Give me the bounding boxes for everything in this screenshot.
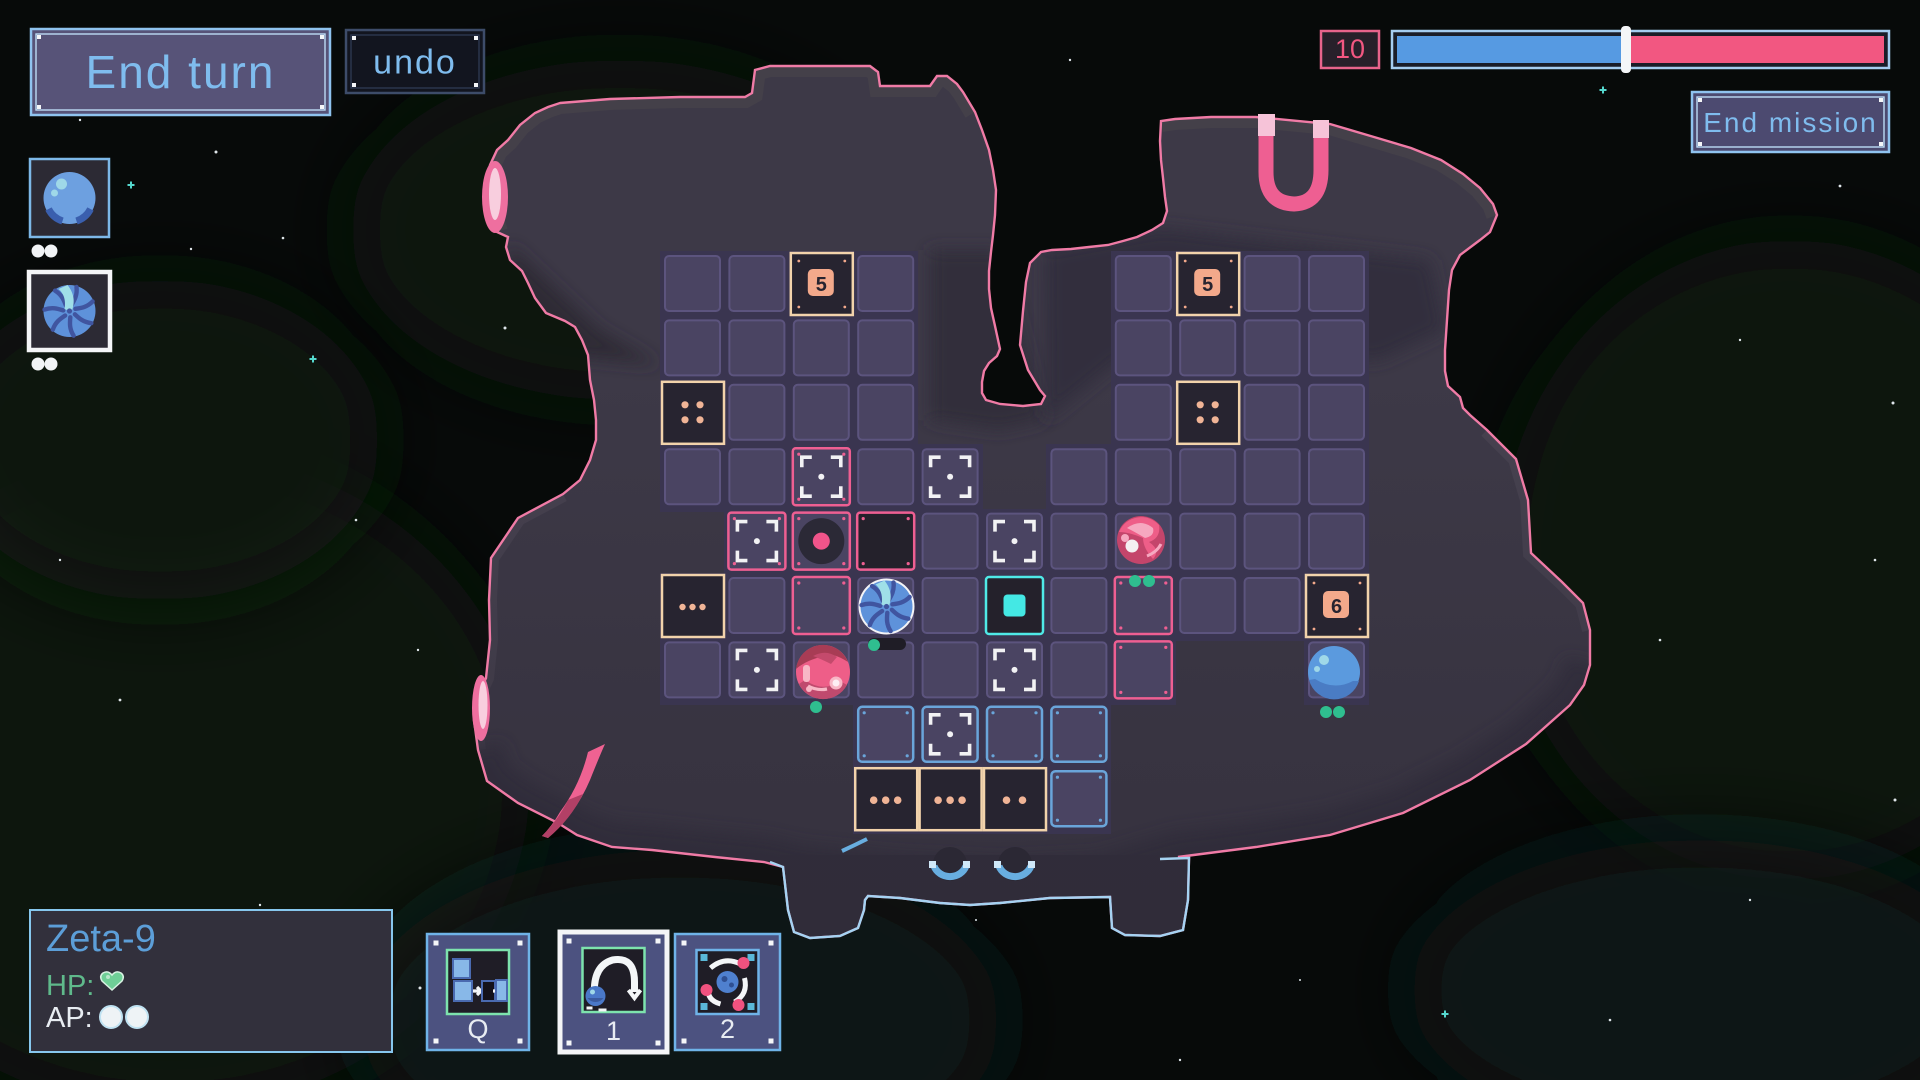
svg-text:2: 2 [720, 1014, 735, 1044]
svg-text:10: 10 [1335, 34, 1365, 64]
svg-text:Zeta-9: Zeta-9 [46, 918, 156, 960]
svg-text:6: 6 [1331, 596, 1342, 618]
svg-text:5: 5 [1202, 274, 1213, 296]
svg-text:AP:: AP: [46, 1002, 93, 1034]
svg-text:End turn: End turn [86, 46, 276, 98]
svg-text:1: 1 [606, 1016, 621, 1046]
svg-text:undo: undo [373, 43, 457, 81]
svg-text:End mission: End mission [1703, 107, 1878, 138]
svg-text:5: 5 [816, 274, 827, 296]
svg-text:HP:: HP: [46, 970, 94, 1002]
svg-text:Q: Q [467, 1014, 488, 1044]
